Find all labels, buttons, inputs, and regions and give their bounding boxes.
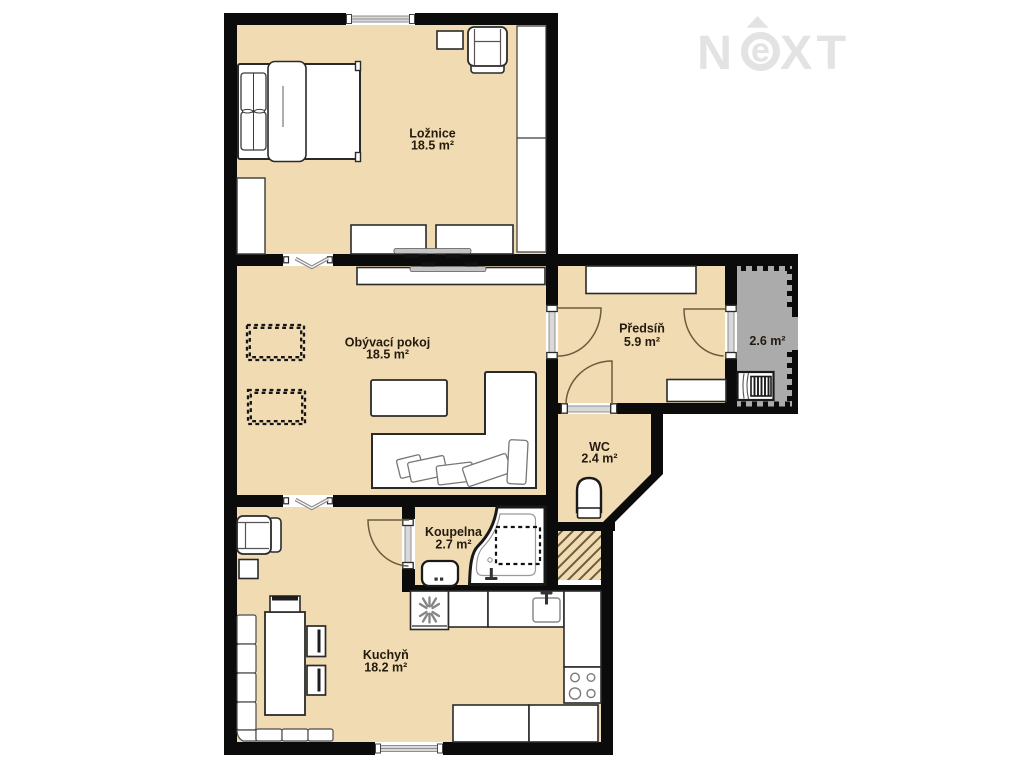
svg-text:T: T [817,26,847,80]
svg-text:2.7 m²: 2.7 m² [435,537,471,551]
svg-text:N: N [697,26,732,80]
svg-text:18.5 m²: 18.5 m² [411,139,454,153]
svg-text:5.9 m²: 5.9 m² [624,335,660,349]
svg-text:18.5 m²: 18.5 m² [366,348,409,362]
svg-text:2.4 m²: 2.4 m² [581,452,617,466]
svg-text:18.2 m²: 18.2 m² [364,660,407,674]
svg-text:X: X [780,26,812,80]
svg-text:Předsíň: Předsíň [619,321,665,335]
svg-text:2.6 m²: 2.6 m² [749,334,785,348]
svg-text:e: e [751,32,770,70]
